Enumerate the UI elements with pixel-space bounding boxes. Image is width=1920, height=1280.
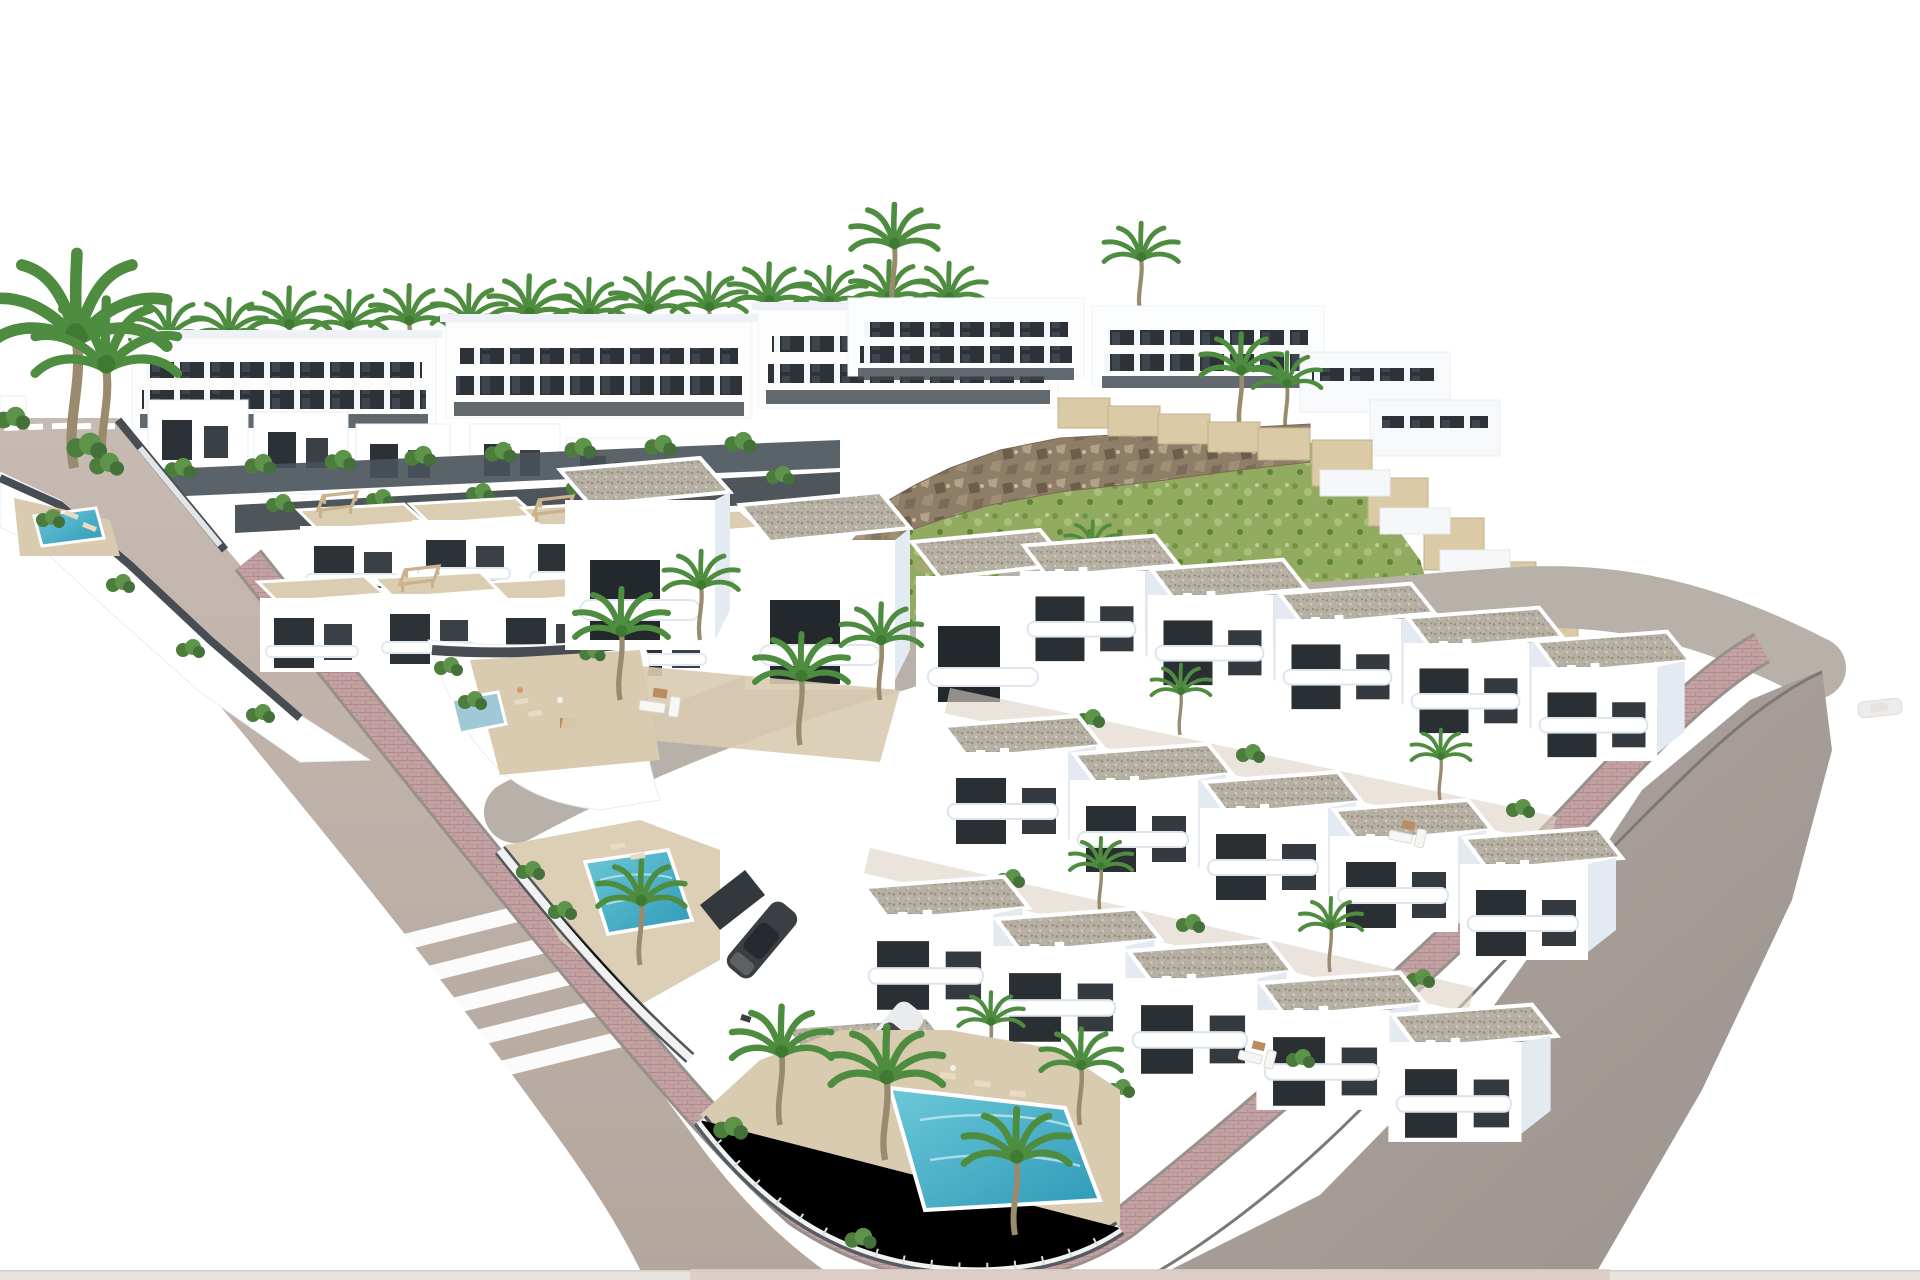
row-house bbox=[1532, 632, 1691, 761]
render-canvas bbox=[0, 0, 1920, 1280]
row-house bbox=[1460, 828, 1622, 960]
person bbox=[517, 687, 523, 693]
row-house bbox=[1388, 1005, 1556, 1142]
person bbox=[557, 697, 563, 703]
bottom-strip bbox=[0, 1269, 1920, 1280]
person bbox=[950, 1065, 956, 1071]
detached-villa bbox=[560, 458, 730, 650]
development-render bbox=[0, 0, 1920, 1280]
terraced-roof bbox=[1320, 470, 1390, 496]
terraced-roof bbox=[1380, 508, 1450, 534]
apartment-slab bbox=[440, 314, 758, 418]
